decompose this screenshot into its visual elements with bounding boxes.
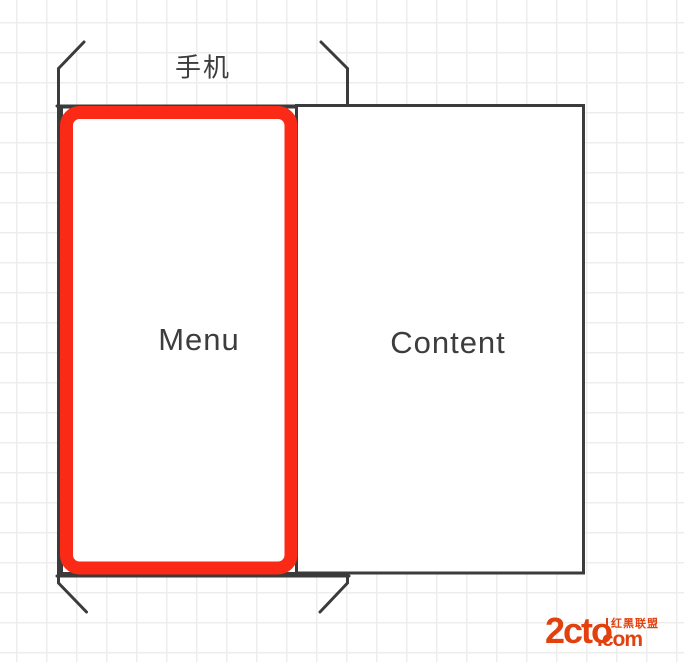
phone-frame-label: 手机 — [175, 48, 231, 85]
watermark-domain-suffix: .com — [597, 631, 659, 650]
watermark-logo: 2cto 红黑联盟 .com — [545, 616, 659, 650]
diagram-canvas: 手机 Menu Content 2cto 红黑联盟 .com — [0, 0, 684, 662]
menu-label: Menu — [158, 322, 240, 358]
content-label: Content — [390, 325, 506, 361]
